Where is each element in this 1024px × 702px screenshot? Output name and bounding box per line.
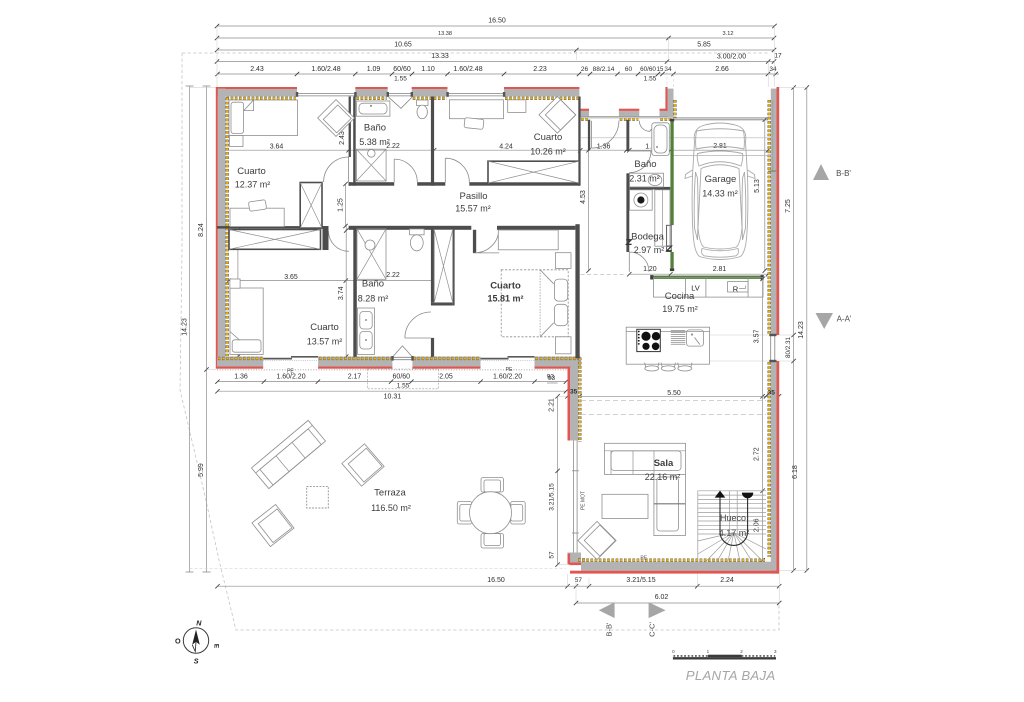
svg-text:Baño: Baño — [364, 123, 386, 134]
svg-text:35: 35 — [768, 389, 776, 396]
svg-text:3.64: 3.64 — [270, 143, 284, 150]
svg-text:35: 35 — [570, 388, 578, 395]
svg-text:PE: PE — [287, 369, 294, 375]
svg-text:26: 26 — [581, 66, 589, 73]
svg-text:C-C': C-C' — [648, 622, 657, 637]
svg-text:Cuarto: Cuarto — [310, 322, 339, 333]
svg-text:16.50: 16.50 — [487, 577, 505, 584]
svg-text:2.81: 2.81 — [713, 266, 727, 273]
svg-text:80/2.31: 80/2.31 — [785, 337, 792, 359]
svg-text:57: 57 — [548, 551, 555, 559]
svg-text:Pasillo: Pasillo — [460, 191, 488, 202]
svg-text:5.85: 5.85 — [697, 42, 711, 49]
svg-text:1.55: 1.55 — [394, 76, 407, 83]
svg-text:6.02: 6.02 — [655, 594, 669, 601]
svg-text:5.13: 5.13 — [754, 179, 761, 193]
svg-text:8.28 m²: 8.28 m² — [358, 294, 389, 304]
svg-text:Cuarto: Cuarto — [534, 132, 563, 143]
svg-text:10.65: 10.65 — [394, 42, 412, 49]
svg-text:2.66: 2.66 — [715, 66, 729, 73]
svg-text:1.20: 1.20 — [643, 266, 657, 273]
svg-text:3.21/5.15: 3.21/5.15 — [626, 577, 655, 584]
svg-text:34: 34 — [769, 66, 777, 73]
svg-text:1.25: 1.25 — [337, 198, 344, 212]
svg-text:Cuarto: Cuarto — [490, 281, 521, 292]
svg-text:2.17: 2.17 — [348, 373, 362, 380]
svg-text:4.53: 4.53 — [580, 190, 587, 204]
svg-text:2.31 m²: 2.31 m² — [629, 174, 660, 184]
svg-text:60/60: 60/60 — [393, 66, 411, 73]
svg-text:1.10: 1.10 — [421, 66, 435, 73]
svg-text:8.24: 8.24 — [198, 223, 205, 237]
svg-text:PE: PE — [640, 556, 647, 562]
svg-text:14.33 m²: 14.33 m² — [702, 189, 738, 199]
svg-text:4.17 m²: 4.17 m² — [719, 528, 750, 538]
svg-text:1.60/2.48: 1.60/2.48 — [453, 66, 482, 73]
svg-text:3.00/2.00: 3.00/2.00 — [717, 54, 746, 61]
svg-text:3.65: 3.65 — [284, 274, 298, 281]
svg-text:N: N — [196, 618, 202, 627]
svg-text:PLANTA BAJA: PLANTA BAJA — [686, 668, 776, 683]
svg-text:B-B': B-B' — [836, 169, 851, 178]
svg-text:10.26 m²: 10.26 m² — [530, 147, 566, 157]
svg-text:2.97 m²: 2.97 m² — [634, 245, 665, 255]
svg-text:12.37 m²: 12.37 m² — [235, 180, 271, 190]
svg-text:2.05: 2.05 — [439, 373, 453, 380]
svg-text:5.50: 5.50 — [667, 390, 681, 397]
svg-text:Sala: Sala — [654, 458, 674, 469]
svg-text:22.16 m²: 22.16 m² — [645, 472, 681, 482]
svg-text:B-B': B-B' — [605, 622, 614, 637]
svg-text:Garage: Garage — [705, 174, 737, 185]
svg-text:93: 93 — [548, 375, 556, 382]
svg-text:Baño: Baño — [362, 279, 384, 290]
svg-text:4.24: 4.24 — [499, 144, 513, 151]
svg-text:1.60/2.48: 1.60/2.48 — [311, 66, 340, 73]
svg-text:1.55: 1.55 — [644, 76, 657, 83]
svg-text:2.72: 2.72 — [753, 447, 760, 461]
svg-text:2.43: 2.43 — [339, 131, 346, 145]
svg-text:1.09: 1.09 — [367, 66, 381, 73]
svg-text:3.74: 3.74 — [338, 286, 345, 300]
svg-text:10.31: 10.31 — [384, 393, 402, 400]
svg-text:1.36: 1.36 — [234, 373, 248, 380]
svg-text:3.21/5.15: 3.21/5.15 — [548, 483, 555, 511]
svg-text:15.81 m²: 15.81 m² — [487, 294, 523, 304]
svg-text:15.57 m²: 15.57 m² — [455, 204, 491, 214]
svg-text:O: O — [175, 636, 181, 645]
svg-text:116.50 m²: 116.50 m² — [371, 503, 411, 513]
svg-text:60/60: 60/60 — [640, 66, 656, 73]
svg-text:2.22: 2.22 — [386, 272, 400, 279]
svg-text:13.38: 13.38 — [438, 31, 452, 37]
svg-text:3.12: 3.12 — [723, 31, 734, 37]
svg-text:60/60: 60/60 — [393, 373, 411, 380]
svg-text:19.75 m²: 19.75 m² — [662, 304, 698, 314]
svg-text:2.21: 2.21 — [548, 398, 555, 412]
svg-text:2.24: 2.24 — [720, 577, 734, 584]
svg-text:16.50: 16.50 — [488, 18, 506, 25]
svg-text:E: E — [213, 644, 220, 649]
svg-text:17: 17 — [774, 53, 782, 60]
svg-text:A-A': A-A' — [837, 315, 852, 324]
svg-text:34: 34 — [664, 66, 672, 73]
svg-text:14.23: 14.23 — [798, 321, 805, 339]
svg-text:60: 60 — [625, 66, 633, 73]
svg-text:Hueco: Hueco — [720, 513, 746, 523]
svg-text:88/2.14: 88/2.14 — [593, 66, 615, 73]
svg-text:PE: PE — [506, 367, 513, 373]
svg-text:2.23: 2.23 — [533, 66, 547, 73]
svg-text:1.60/2.20: 1.60/2.20 — [493, 373, 522, 380]
svg-text:Bodega: Bodega — [631, 232, 664, 243]
svg-text:2.43: 2.43 — [250, 66, 264, 73]
svg-text:7.25: 7.25 — [785, 199, 792, 213]
svg-text:6.18: 6.18 — [792, 465, 799, 479]
svg-text:Baño: Baño — [634, 159, 656, 170]
svg-text:13.33: 13.33 — [431, 53, 449, 60]
svg-text:14.23: 14.23 — [182, 318, 189, 336]
svg-text:5.38 m²: 5.38 m² — [359, 137, 390, 147]
svg-text:5.99: 5.99 — [198, 463, 205, 477]
svg-text:S: S — [194, 657, 199, 666]
svg-text:15: 15 — [657, 67, 664, 73]
svg-text:Cuarto: Cuarto — [237, 166, 266, 177]
svg-text:13.57 m²: 13.57 m² — [307, 337, 343, 347]
svg-text:Terraza: Terraza — [374, 488, 406, 499]
svg-text:R: R — [733, 285, 739, 294]
svg-text:PE MOT: PE MOT — [580, 491, 586, 510]
svg-text:3.57: 3.57 — [753, 329, 760, 343]
svg-text:Cocina: Cocina — [665, 291, 695, 302]
